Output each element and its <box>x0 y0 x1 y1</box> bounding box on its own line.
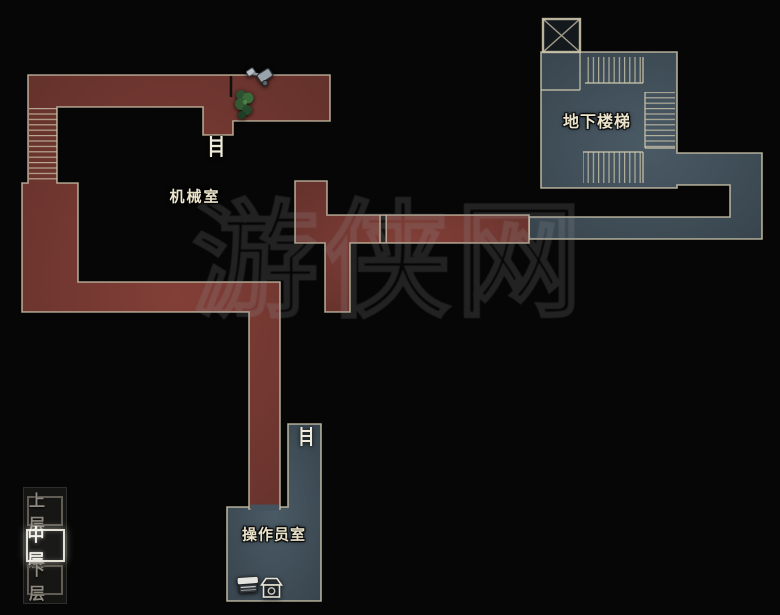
operator-room-label: 操作员室 <box>242 524 306 545</box>
elevator-icon <box>543 19 580 52</box>
corridor-door <box>380 215 386 243</box>
machine-room-shape <box>22 75 330 509</box>
floor-selector: 上层 中层 下层 <box>23 487 67 604</box>
left-staircase <box>29 107 57 183</box>
machine-room-label: 机械室 <box>169 186 220 207</box>
map-svg <box>0 0 780 615</box>
tape-recorder-save-icon <box>236 573 260 595</box>
t-corridor-shape <box>295 181 529 312</box>
ladder-icon <box>299 426 314 447</box>
mower-item-icon <box>246 61 276 89</box>
game-map-screen: 游侠网 机械室 地下楼梯 操作员室 <box>0 0 780 615</box>
floor-button-lower[interactable]: 下层 <box>27 565 63 595</box>
basement-stairs-label: 地下楼梯 <box>563 108 631 132</box>
ladder-icon <box>208 135 225 158</box>
operator-doorway-patch <box>251 505 280 511</box>
plant-icon <box>232 88 256 122</box>
item-box-icon <box>259 577 284 599</box>
